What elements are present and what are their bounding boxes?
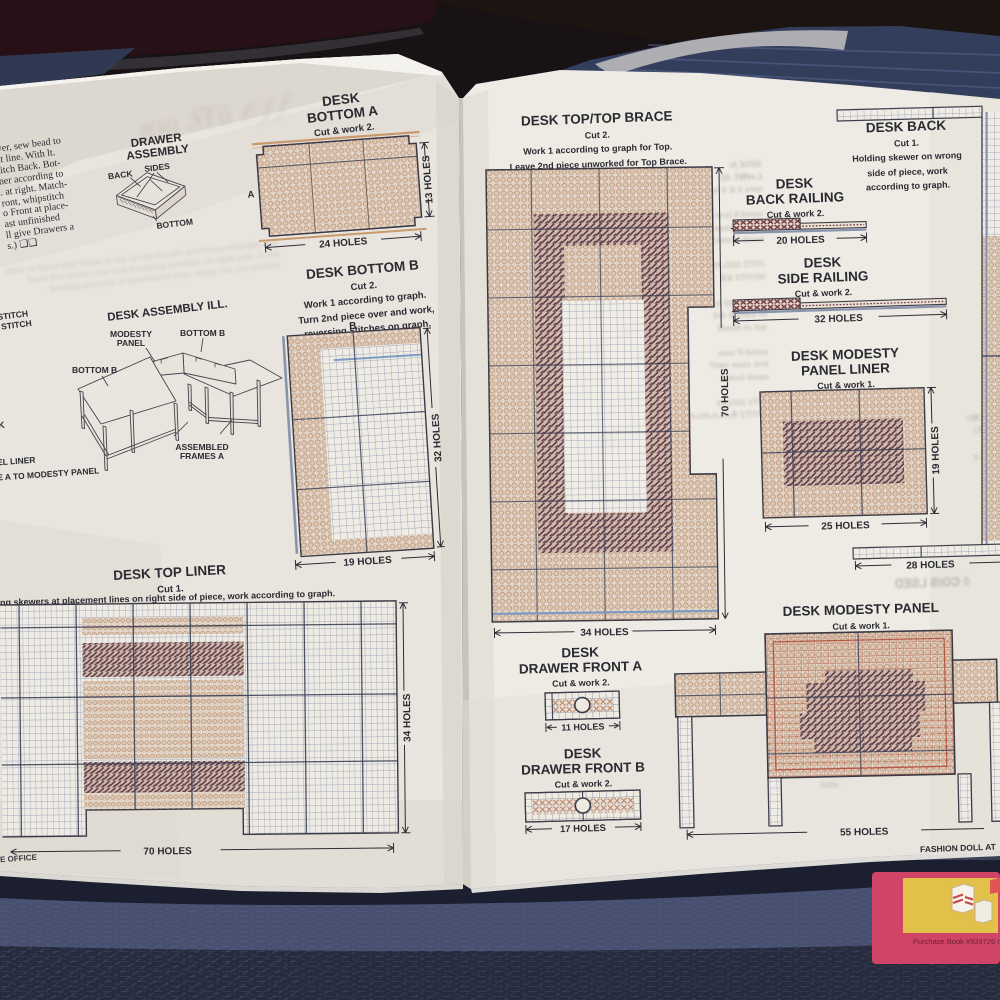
svg-text:25 HOLES: 25 HOLES (821, 520, 870, 532)
svg-text:13 HOLES: 13 HOLES (421, 155, 436, 204)
svg-text:28 HOLES: 28 HOLES (906, 559, 955, 571)
svg-text:55 HOLES: 55 HOLES (840, 827, 889, 839)
svg-text:17 HOLES: 17 HOLES (560, 823, 606, 835)
svg-text:19 HOLES: 19 HOLES (343, 555, 392, 569)
svg-text:BOTTOM B: BOTTOM B (72, 365, 117, 375)
svg-text:20 HOLES: 20 HOLES (776, 235, 825, 247)
svg-text:32 HOLES: 32 HOLES (430, 413, 444, 462)
svg-text:A: A (247, 189, 255, 200)
svg-text:32 HOLES: 32 HOLES (814, 313, 863, 326)
svg-text:70 HOLES: 70 HOLES (143, 846, 192, 858)
svg-text:ASSEMBLEDFRAMES A: ASSEMBLEDFRAMES A (175, 442, 228, 461)
svg-text:BACK: BACK (107, 168, 133, 181)
svg-text:BOTTOM B: BOTTOM B (180, 328, 225, 338)
svg-text:MODESTYPANEL: MODESTYPANEL (110, 329, 152, 348)
svg-text:34 HOLES: 34 HOLES (580, 627, 629, 639)
svg-text:Purchase Book #933726 t: Purchase Book #933726 t (913, 937, 1000, 946)
svg-text:11 HOLES: 11 HOLES (561, 721, 604, 732)
svg-text:24 HOLES: 24 HOLES (319, 236, 368, 251)
svg-text:SIDES: SIDES (144, 161, 171, 174)
svg-text:19 HOLES: 19 HOLES (930, 426, 942, 475)
svg-text:34 HOLES: 34 HOLES (402, 693, 414, 742)
svg-text:70 HOLES: 70 HOLES (720, 368, 732, 417)
svg-text:B: B (349, 321, 357, 332)
